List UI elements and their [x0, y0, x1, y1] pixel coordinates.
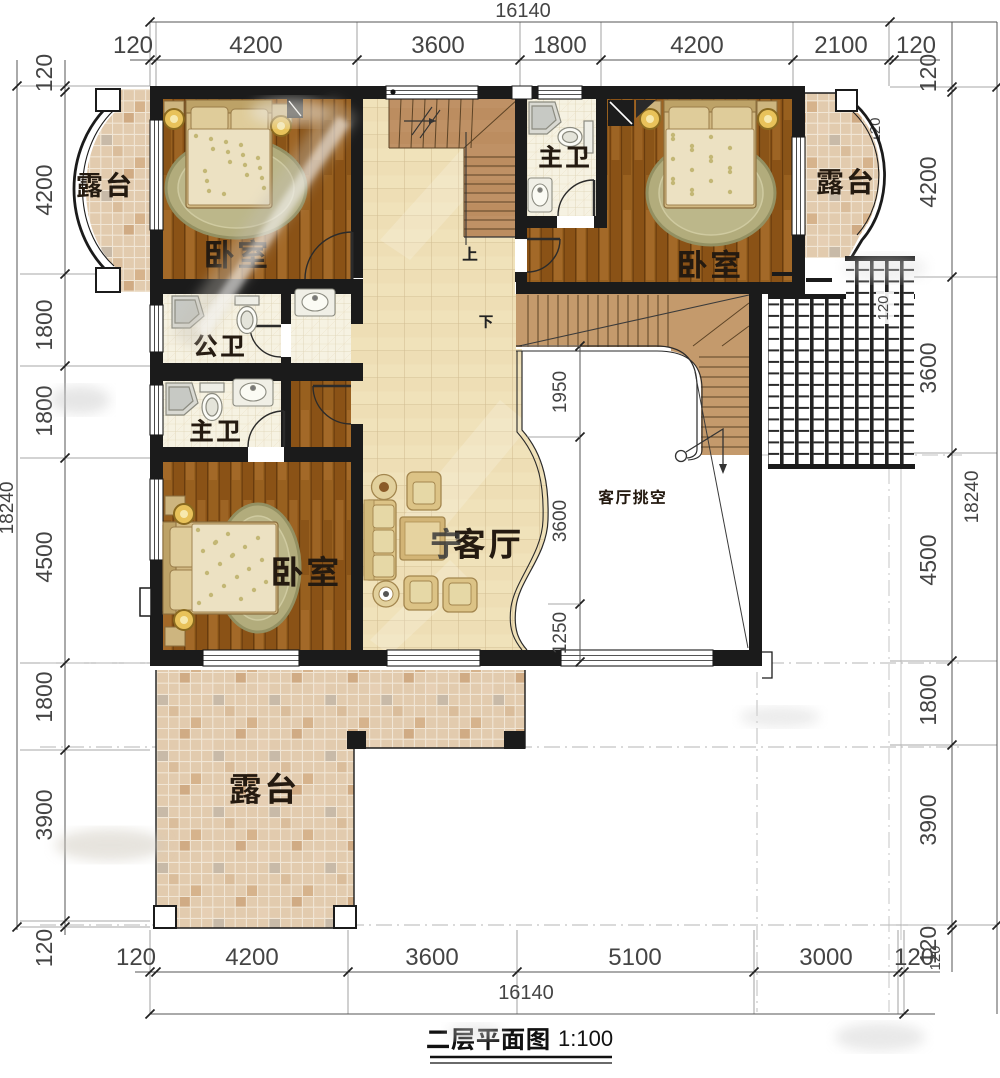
svg-text:120: 120 — [113, 32, 153, 59]
svg-text:1800: 1800 — [31, 671, 57, 722]
svg-text:1250: 1250 — [550, 612, 571, 654]
svg-text:3900: 3900 — [31, 789, 57, 840]
svg-text:120: 120 — [875, 295, 892, 320]
svg-text:18240: 18240 — [0, 482, 18, 535]
svg-text:120: 120 — [915, 54, 941, 92]
svg-text:1800: 1800 — [533, 32, 586, 59]
svg-text:1950: 1950 — [550, 371, 571, 413]
svg-text:4200: 4200 — [31, 164, 57, 215]
svg-text:16140: 16140 — [498, 982, 554, 1004]
svg-text:3600: 3600 — [405, 944, 458, 971]
svg-text:4200: 4200 — [229, 32, 282, 59]
svg-text:2100: 2100 — [814, 32, 867, 59]
svg-text:16140: 16140 — [495, 0, 551, 22]
svg-text:4200: 4200 — [225, 944, 278, 971]
svg-text:3600: 3600 — [915, 342, 941, 393]
svg-text:120: 120 — [31, 929, 57, 967]
svg-text:3600: 3600 — [550, 500, 571, 542]
svg-text:18240: 18240 — [962, 471, 983, 524]
svg-text:1800: 1800 — [915, 674, 941, 725]
svg-text:120: 120 — [116, 944, 156, 971]
svg-text:3900: 3900 — [915, 794, 941, 845]
svg-text:3600: 3600 — [411, 32, 464, 59]
svg-text:120: 120 — [31, 54, 57, 92]
svg-text:1:100: 1:100 — [558, 1026, 613, 1051]
svg-text:1800: 1800 — [31, 299, 57, 350]
svg-text:4200: 4200 — [915, 156, 941, 207]
svg-text:1800: 1800 — [31, 385, 57, 436]
svg-text:3000: 3000 — [799, 944, 852, 971]
svg-text:5100: 5100 — [608, 944, 661, 971]
svg-text:120: 120 — [927, 945, 944, 970]
svg-text:4500: 4500 — [915, 534, 941, 585]
svg-text:4200: 4200 — [670, 32, 723, 59]
svg-text:4500: 4500 — [31, 531, 57, 582]
